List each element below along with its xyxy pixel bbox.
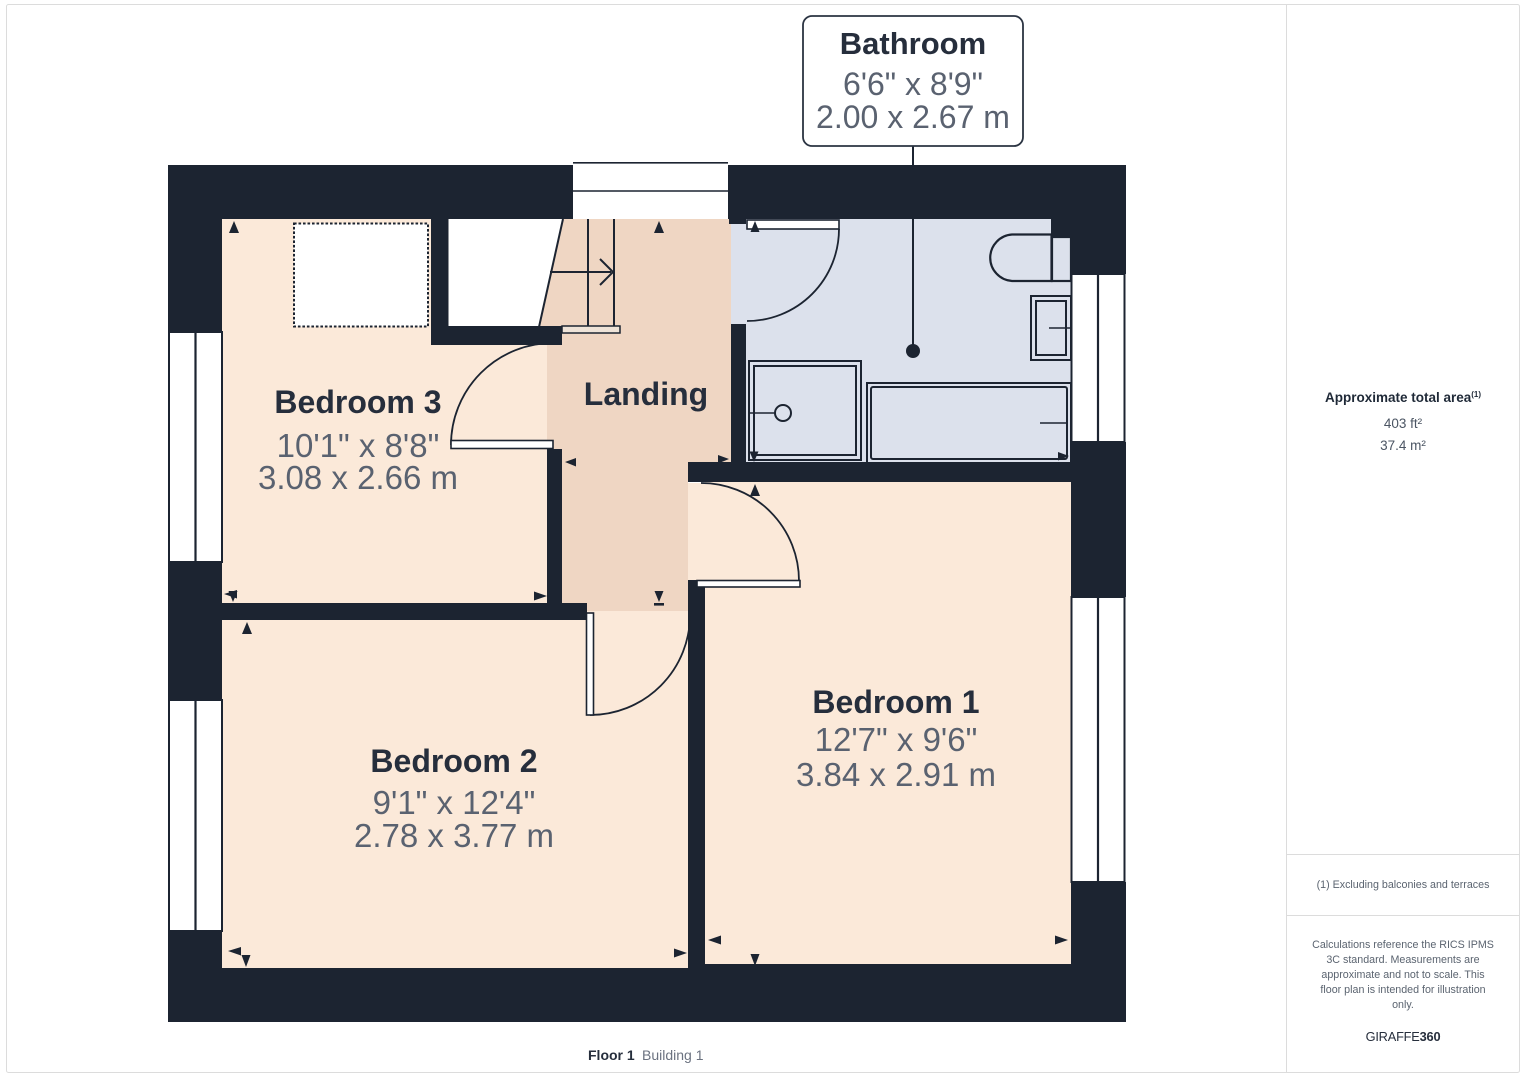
svg-text:3.08 x 2.66 m: 3.08 x 2.66 m — [258, 459, 458, 496]
svg-text:9'1" x 12'4": 9'1" x 12'4" — [373, 784, 536, 821]
svg-text:(1) Excluding balconies and te: (1) Excluding balconies and terraces — [1317, 879, 1490, 891]
svg-text:37.4 m²: 37.4 m² — [1380, 438, 1426, 453]
svg-text:3C standard. Measurements are: 3C standard. Measurements are — [1326, 954, 1479, 966]
svg-text:Building 1: Building 1 — [642, 1047, 704, 1063]
svg-text:floor plan is intended for ill: floor plan is intended for illustration — [1320, 984, 1485, 996]
svg-text:only.: only. — [1392, 999, 1414, 1011]
svg-text:Floor 1: Floor 1 — [588, 1047, 635, 1063]
svg-text:2.78 x 3.77 m: 2.78 x 3.77 m — [354, 817, 554, 854]
svg-text:3.84 x 2.91 m: 3.84 x 2.91 m — [796, 756, 996, 793]
svg-text:Landing: Landing — [584, 376, 708, 412]
svg-text:Calculations reference the RIC: Calculations reference the RICS IPMS — [1312, 939, 1494, 951]
svg-text:Bedroom 2: Bedroom 2 — [370, 743, 537, 779]
svg-text:Bathroom: Bathroom — [840, 26, 986, 61]
svg-text:Approximate total area(1): Approximate total area(1) — [1325, 390, 1481, 405]
svg-text:2.00 x 2.67 m: 2.00 x 2.67 m — [816, 99, 1010, 135]
svg-text:6'6" x 8'9": 6'6" x 8'9" — [843, 66, 983, 102]
svg-text:12'7" x 9'6": 12'7" x 9'6" — [815, 721, 978, 758]
svg-text:GIRAFFE360: GIRAFFE360 — [1366, 1029, 1441, 1044]
svg-text:approximate and not to scale.: approximate and not to scale. This — [1321, 969, 1484, 981]
svg-text:Bedroom 3: Bedroom 3 — [274, 384, 441, 420]
svg-text:403 ft²: 403 ft² — [1384, 416, 1423, 431]
svg-text:Bedroom 1: Bedroom 1 — [812, 684, 979, 720]
